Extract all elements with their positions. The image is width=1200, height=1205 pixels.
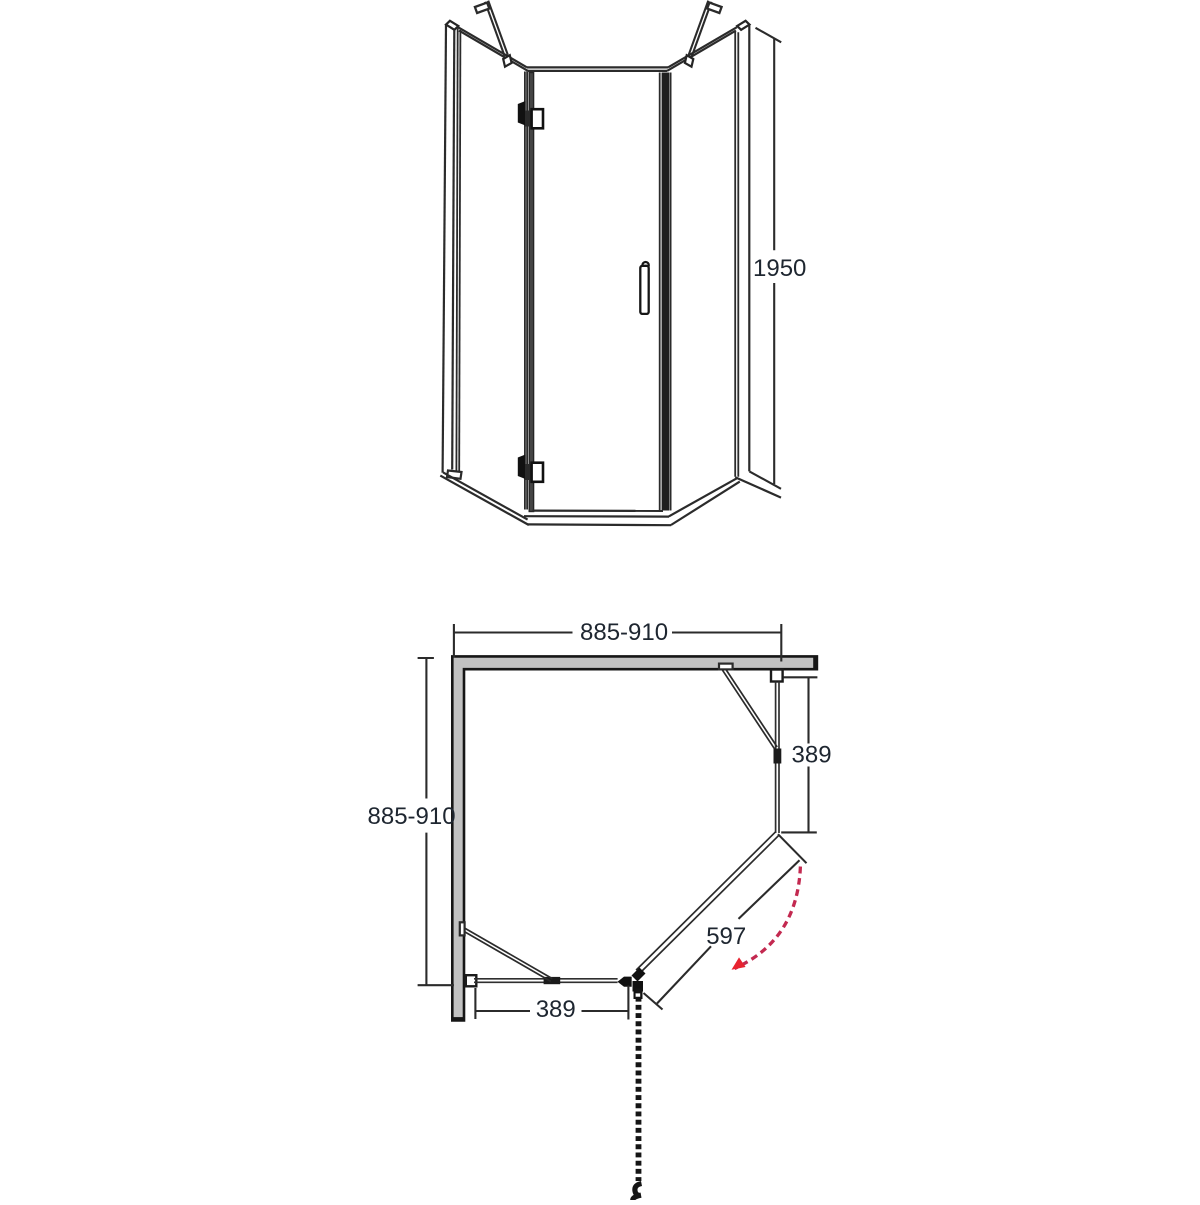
svg-text:885-910: 885-910 <box>580 619 668 646</box>
svg-text:389: 389 <box>536 996 576 1023</box>
svg-text:389: 389 <box>792 742 832 769</box>
svg-text:885-910: 885-910 <box>368 803 456 830</box>
svg-text:1950: 1950 <box>753 255 806 282</box>
svg-text:597: 597 <box>706 923 746 950</box>
